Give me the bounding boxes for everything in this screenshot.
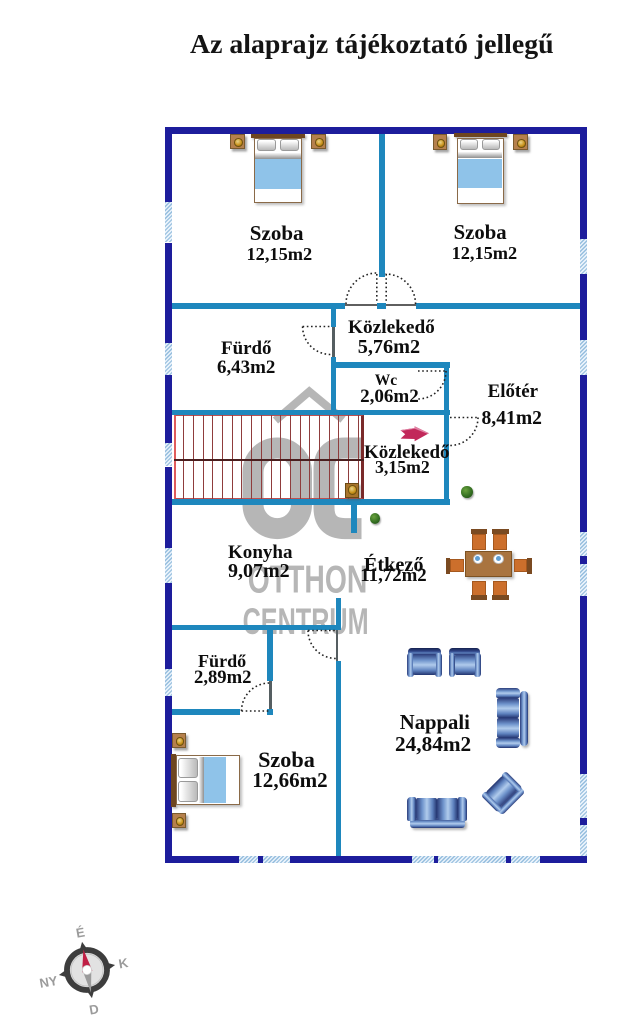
svg-text:NY: NY (38, 973, 59, 991)
svg-text:D: D (88, 1001, 100, 1017)
svg-text:K: K (117, 955, 129, 972)
svg-text:É: É (75, 924, 86, 940)
